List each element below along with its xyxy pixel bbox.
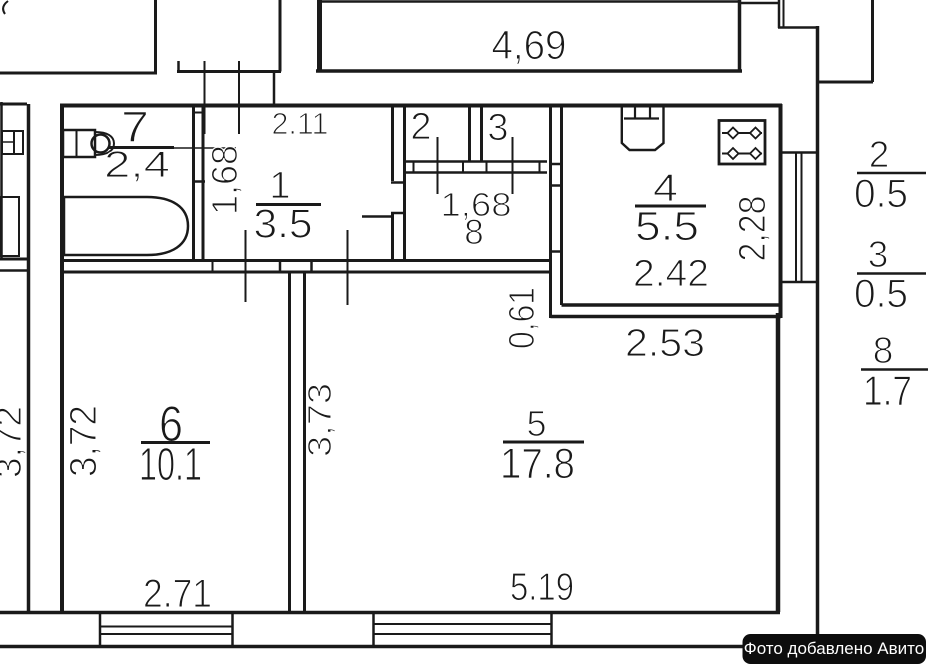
svg-text:17.8: 17.8 xyxy=(500,440,575,488)
svg-text:2.53: 2.53 xyxy=(625,322,705,365)
svg-text:3: 3 xyxy=(487,107,508,149)
svg-text:8: 8 xyxy=(873,330,894,371)
svg-text:2.42: 2.42 xyxy=(633,253,709,295)
svg-text:5.5: 5.5 xyxy=(635,203,699,249)
svg-text:5: 5 xyxy=(526,403,546,444)
svg-text:3,73: 3,73 xyxy=(301,383,338,457)
svg-text:1.7: 1.7 xyxy=(863,367,912,414)
svg-text:2: 2 xyxy=(869,134,890,175)
svg-text:10.1: 10.1 xyxy=(139,438,202,490)
svg-text:1,68: 1,68 xyxy=(204,145,245,215)
svg-text:0.5: 0.5 xyxy=(854,272,908,316)
svg-text:2,4: 2,4 xyxy=(104,144,170,185)
svg-text:3: 3 xyxy=(868,234,889,275)
svg-text:3,72: 3,72 xyxy=(0,406,29,478)
svg-text:3.5: 3.5 xyxy=(254,201,313,247)
svg-text:4,69: 4,69 xyxy=(492,22,567,68)
svg-text:2: 2 xyxy=(410,106,431,148)
svg-text:3,72: 3,72 xyxy=(63,405,105,477)
svg-text:8: 8 xyxy=(464,213,483,252)
svg-text:2.71: 2.71 xyxy=(143,572,212,616)
svg-text:Фото добавлено Авито: Фото добавлено Авито xyxy=(744,639,924,658)
svg-text:0.5: 0.5 xyxy=(854,172,908,216)
svg-text:2,28: 2,28 xyxy=(732,196,774,262)
svg-text:5.19: 5.19 xyxy=(510,566,574,609)
svg-text:0,61: 0,61 xyxy=(501,287,542,349)
svg-text:2.11: 2.11 xyxy=(272,106,329,141)
